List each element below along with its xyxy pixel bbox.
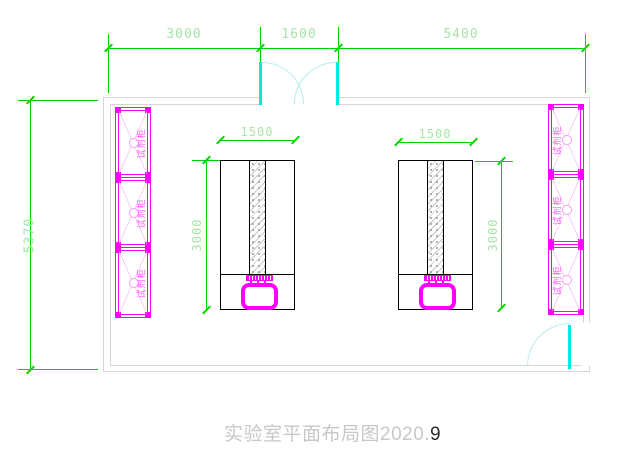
cabinet-label: 试剂柜 (553, 121, 564, 161)
cabinet-knob (562, 275, 572, 285)
dim-tick (26, 365, 35, 374)
dim-label-left: 5370 (23, 206, 38, 266)
drawing-title-text: 实验室平面布局图2020. (224, 424, 430, 445)
dim-label-bench1-height: 3000 (190, 205, 204, 265)
cabinet-label: 试剂柜 (137, 194, 148, 234)
cabinet-label: 试剂柜 (553, 191, 564, 231)
dim-bench2-width-line (398, 142, 473, 143)
cabinet-knob (562, 135, 572, 145)
cabinet-label: 试剂柜 (137, 124, 148, 164)
dim-bench1-width-line (220, 140, 295, 141)
bench-hatch-strip (249, 161, 266, 274)
reagent-cabinet: 试剂柜 (548, 244, 584, 315)
dim-label-bench2-width: 1500 (405, 127, 465, 141)
dim-label-top-1: 3000 (154, 27, 214, 42)
bench-hatch-strip (427, 161, 444, 274)
floorplan-canvas: 3000 1600 5400 5370 试剂柜 试剂柜 试剂柜 试剂柜 (0, 0, 619, 469)
lab-bench-1 (220, 160, 295, 310)
double-door-left-leaf (259, 62, 262, 105)
lab-bench-2 (398, 160, 473, 310)
cabinet-label: 试剂柜 (137, 264, 148, 304)
drawing-title: 实验室平面布局图2020.9 (224, 419, 441, 446)
reagent-cabinet: 试剂柜 (548, 174, 584, 245)
drawing-title-suffix: 9 (430, 424, 441, 445)
stool-seat (241, 283, 278, 310)
dim-top-ext-right (585, 34, 586, 93)
dim-top-line (108, 48, 585, 49)
reagent-cabinet: 试剂柜 (115, 247, 151, 318)
double-door-right-arc (294, 62, 336, 104)
dim-bench2-height-line (501, 161, 502, 308)
dim-top-ext-left (108, 34, 109, 93)
dim-label-top-3: 5400 (431, 27, 491, 42)
dim-bench2-height-ext (475, 161, 513, 162)
cabinet-knob (562, 205, 572, 215)
single-door-leaf (568, 325, 571, 369)
wall-gap-right-door (581, 323, 592, 366)
cabinet-label: 试剂柜 (553, 261, 564, 301)
reagent-cabinet: 试剂柜 (115, 177, 151, 248)
stool-seat (419, 283, 456, 310)
room-wall-inner (110, 104, 584, 366)
dim-label-top-2: 1600 (269, 27, 329, 42)
dim-label-bench2-height: 3000 (486, 205, 500, 265)
reagent-cabinet: 试剂柜 (115, 107, 151, 178)
dim-label-bench1-width: 1500 (227, 125, 287, 139)
reagent-cabinet: 试剂柜 (548, 104, 584, 175)
dim-bench1-height-line (206, 160, 207, 310)
double-door-right-leaf (336, 62, 339, 105)
